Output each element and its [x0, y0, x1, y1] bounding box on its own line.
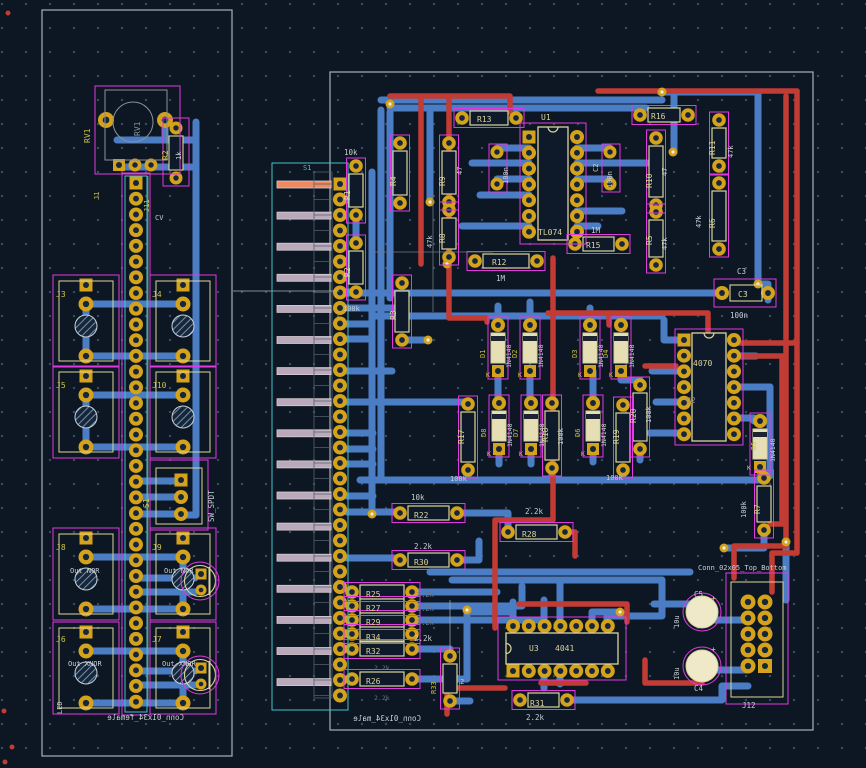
pad-hole — [133, 479, 139, 485]
dip-body-U1[interactable] — [538, 127, 568, 240]
pcb-editor-canvas[interactable]: RV1RV1R21kJ1J11CVJ3J4J5J10J8J9J6J7Out NO… — [0, 0, 866, 768]
label-r25-val[interactable]: 2.2k — [417, 591, 435, 599]
pad-hole — [447, 698, 453, 704]
label-j12-val[interactable]: Conn_02x05_Top_Bottom — [698, 564, 787, 572]
label-j4-ref[interactable]: J4 — [152, 290, 162, 299]
label-c4-plus[interactable]: + — [711, 645, 716, 654]
edge-finger[interactable] — [277, 399, 331, 406]
pad-hole — [409, 603, 415, 609]
label-r20-val[interactable]: 100k — [645, 405, 653, 423]
label-u1-ref[interactable]: U1 — [541, 113, 551, 122]
label-d3-ref[interactable]: D3 — [571, 350, 579, 358]
label-r17-val[interactable]: 100k — [450, 475, 468, 483]
pad-hole — [337, 367, 343, 373]
resistor-body-R9[interactable] — [442, 151, 456, 194]
pad-hole — [337, 414, 343, 420]
pad-hole — [83, 606, 89, 612]
pad-hole — [353, 289, 359, 295]
label-d2-k[interactable]: K — [518, 371, 522, 379]
pad-hole — [510, 623, 516, 629]
label-r9-val[interactable]: 47 — [456, 167, 464, 175]
pad-hole — [745, 663, 751, 669]
edge-finger[interactable] — [277, 243, 331, 250]
pad-hole — [605, 668, 611, 674]
pad-hole — [762, 663, 768, 669]
label-r29-ref[interactable]: R29 — [366, 618, 381, 627]
pad-hole — [173, 175, 178, 180]
pad-hole — [133, 400, 139, 406]
label-d4-k[interactable]: K — [609, 371, 613, 379]
pad-hole — [589, 668, 595, 674]
label-j5-ref[interactable]: J5 — [56, 381, 66, 390]
label-c4-ref[interactable]: C4 — [694, 684, 704, 693]
label-d7-ref[interactable]: D7 — [512, 429, 520, 437]
label-j1-ref[interactable]: J1 — [93, 192, 101, 200]
pad-hole — [745, 647, 751, 653]
label-r15-val[interactable]: 1M — [591, 226, 601, 235]
label-c2-val[interactable]: 100n — [606, 171, 614, 188]
label-u2-ref[interactable]: U2 — [686, 396, 696, 405]
label-r34-val[interactable]: 2.2k — [414, 634, 433, 643]
pad-hole — [133, 557, 139, 563]
pad-hole — [494, 181, 499, 186]
pad-hole — [510, 668, 516, 674]
pad-hole — [681, 353, 687, 359]
pad-hole — [198, 571, 204, 577]
pad-hole — [527, 368, 533, 374]
label-d2-ref[interactable]: D2 — [511, 350, 519, 358]
pad-hole — [762, 647, 768, 653]
label-d1-k[interactable]: K — [486, 371, 490, 379]
pad-hole — [472, 258, 478, 264]
pad-hole — [337, 212, 343, 218]
pad-hole — [446, 140, 452, 146]
label-d6-ref[interactable]: D6 — [574, 429, 582, 437]
cap-body-C4[interactable] — [686, 650, 718, 682]
label-u3-val[interactable]: 4041 — [555, 644, 574, 653]
pad-hole — [133, 510, 139, 516]
label-j9-ref[interactable]: J9 — [152, 543, 162, 552]
pad-hole — [180, 282, 186, 288]
edge-finger[interactable] — [277, 554, 331, 561]
pad-hole — [513, 115, 519, 121]
pad-hole — [574, 134, 580, 140]
pad-hole — [337, 491, 343, 497]
edge-finger[interactable] — [277, 648, 331, 655]
pad-hole — [549, 400, 555, 406]
label-j6-ref[interactable]: J6 — [56, 635, 66, 644]
pad-hole — [681, 431, 687, 437]
pad-hole — [337, 383, 343, 389]
edge-finger[interactable] — [277, 274, 331, 281]
resistor-body-R4[interactable] — [393, 151, 407, 195]
pad-hole — [557, 623, 563, 629]
label-out-xnor-1[interactable]: Out XNOR — [68, 660, 103, 668]
label-j12-ref[interactable]: J12 — [742, 701, 756, 710]
pad-hole — [534, 258, 540, 264]
pad-hole — [337, 181, 343, 187]
diode-band — [614, 336, 628, 341]
pad-hole — [446, 254, 452, 260]
pad-hole — [526, 213, 532, 219]
label-sw-spdt-val[interactable]: SW_SPDT — [207, 490, 216, 522]
pad-hole — [574, 150, 580, 156]
label-r7-ref[interactable]: R7 — [753, 504, 762, 514]
pad-hole — [133, 180, 139, 186]
label-out-nor-2[interactable]: Out NOR — [164, 567, 194, 575]
pad-hole — [765, 290, 771, 296]
via-hole — [618, 610, 621, 613]
label-r12-ref[interactable]: R12 — [492, 258, 507, 267]
pad-hole — [681, 368, 687, 374]
pad-hole — [397, 200, 403, 206]
label-j3-ref[interactable]: J3 — [56, 290, 66, 299]
label-r26-ref[interactable]: R26 — [366, 677, 381, 686]
label-r15-ref[interactable]: R15 — [586, 241, 601, 250]
pad-hole — [574, 213, 580, 219]
diode-band — [492, 414, 506, 419]
label-r33-val[interactable]: 2 — [460, 678, 464, 686]
pad-hole — [180, 301, 186, 307]
pad-hole — [681, 416, 687, 422]
pad-hole — [564, 697, 570, 703]
label-r5-val[interactable]: 47k — [661, 237, 669, 250]
edge-finger-selected[interactable] — [277, 181, 331, 188]
pad-hole — [148, 162, 153, 167]
edge-finger[interactable] — [277, 430, 331, 437]
pad-hole — [349, 631, 355, 637]
label-r2l-ref[interactable]: R2 — [161, 150, 170, 160]
label-r20-ref[interactable]: R20 — [629, 408, 638, 423]
pad-hole — [562, 529, 568, 535]
label-d1-ref[interactable]: D1 — [479, 350, 487, 358]
pad-hole — [762, 615, 768, 621]
edge-finger[interactable] — [277, 212, 331, 219]
label-j8-ref[interactable]: J8 — [56, 543, 66, 552]
pad-hole — [337, 429, 343, 435]
pad-hole — [526, 166, 532, 172]
label-s1r-ref[interactable]: S1 — [303, 164, 311, 172]
label-rv1-ref[interactable]: RV1 — [83, 128, 92, 143]
label-r9-ref[interactable]: R9 — [438, 176, 447, 186]
resistor-body-R7[interactable] — [757, 486, 771, 522]
label-d4-ref[interactable]: D4 — [602, 350, 610, 358]
pad-hole — [133, 605, 139, 611]
label-c5-ref[interactable]: C5 — [694, 590, 703, 599]
pad-hole — [574, 229, 580, 235]
pad-hole — [574, 166, 580, 172]
label-r33-ref[interactable]: R33 — [430, 681, 438, 694]
label-r11-ref[interactable]: R11 — [708, 140, 717, 155]
pad-hole — [495, 368, 501, 374]
edge-finger[interactable] — [277, 305, 331, 312]
label-j7-ref[interactable]: J7 — [152, 635, 162, 644]
label-r5-ref[interactable]: R5 — [645, 235, 654, 245]
pad-hole — [133, 620, 139, 626]
edge-finger[interactable] — [277, 585, 331, 592]
pad-hole — [496, 400, 502, 406]
pad-hole — [133, 384, 139, 390]
trace-back[interactable] — [567, 686, 748, 700]
pad-hole — [542, 668, 548, 674]
pad-hole — [526, 623, 532, 629]
pad-hole — [337, 646, 343, 652]
pad-hole — [349, 617, 355, 623]
label-j11-ref[interactable]: J11 — [143, 199, 151, 212]
label-r2r-ref[interactable]: R2 — [343, 267, 352, 277]
label-s1l-ref[interactable]: S1 — [142, 498, 151, 508]
via-hole — [426, 338, 429, 341]
label-u3-ref[interactable]: U3 — [529, 644, 539, 653]
pad-hole — [528, 446, 534, 452]
pcb-drawing[interactable]: RV1RV1R21kJ1J11CVJ3J4J5J10J8J9J6J7Out NO… — [0, 0, 866, 768]
pad-hole — [409, 589, 415, 595]
edge-finger[interactable] — [277, 461, 331, 468]
edge-finger[interactable] — [277, 679, 331, 686]
label-r28-val[interactable]: 2.2k — [525, 507, 544, 516]
label-r25-ref[interactable]: R25 — [366, 590, 381, 599]
label-r6-ref[interactable]: R6 — [708, 218, 717, 228]
trace-back[interactable] — [758, 92, 768, 300]
edge-finger[interactable] — [277, 616, 331, 623]
label-r13-ref[interactable]: R13 — [477, 115, 492, 124]
label-out-xnor-2[interactable]: Out XNOR — [162, 660, 197, 668]
pad-hole — [199, 588, 204, 593]
jack-bushing — [172, 406, 194, 428]
diode-band — [586, 414, 600, 419]
pad-hole — [353, 240, 359, 246]
pad-hole — [337, 677, 343, 683]
pad-hole — [637, 112, 643, 118]
pad-hole — [719, 290, 725, 296]
label-c5-val[interactable]: 10u — [673, 615, 681, 628]
label-d8-ref[interactable]: D8 — [480, 429, 488, 437]
pad-hole — [590, 400, 596, 406]
label-d2-val[interactable]: 1N4148 — [537, 344, 545, 368]
pad-hole — [526, 134, 532, 140]
label-r31-ref[interactable]: R31 — [530, 699, 545, 708]
pad-hole — [337, 538, 343, 544]
label-r19-val[interactable]: 100k — [606, 474, 624, 482]
pad-hole — [409, 676, 415, 682]
pad-hole — [337, 460, 343, 466]
pad-hole — [745, 615, 751, 621]
label-r31-val[interactable]: 2.2k — [526, 713, 545, 722]
label-r30-val[interactable]: 2.2k — [414, 542, 433, 551]
pad-hole — [337, 445, 343, 451]
pad-hole — [133, 683, 139, 689]
label-conn-female[interactable]: Conn_01x34_female — [107, 713, 184, 722]
pad-hole — [637, 446, 643, 452]
label-r18-ref[interactable]: R18 — [541, 427, 550, 442]
diode-band — [753, 432, 767, 437]
edge-finger[interactable] — [277, 337, 331, 344]
label-led-text[interactable]: LED — [56, 701, 64, 714]
label-d8-k[interactable]: K — [487, 450, 491, 458]
label-d6-val[interactable]: 1N4148 — [600, 423, 608, 447]
label-c2-ref[interactable]: C2 — [592, 164, 600, 172]
label-d7-k[interactable]: K — [519, 450, 523, 458]
label-out-nor-1[interactable]: Out NOR — [70, 567, 100, 575]
label-rv1-fab[interactable]: RV1 — [133, 121, 142, 136]
label-r22-ref[interactable]: R22 — [414, 511, 429, 520]
drc-marker — [2, 709, 7, 714]
pad-hole — [745, 631, 751, 637]
pad-hole — [133, 589, 139, 595]
label-c3-val[interactable]: 100n — [730, 311, 748, 320]
diode-band — [491, 336, 505, 341]
pad-hole — [337, 584, 343, 590]
resistor-body-R33[interactable] — [443, 664, 457, 693]
label-c1-val[interactable]: 100n — [502, 167, 510, 184]
pad-hole — [465, 401, 471, 407]
header-body-J12[interactable] — [731, 582, 783, 697]
pad-hole — [465, 467, 471, 473]
pad-hole — [731, 416, 737, 422]
pad-hole — [180, 606, 186, 612]
label-r19-ref[interactable]: R19 — [612, 429, 621, 444]
pad-hole — [337, 553, 343, 559]
label-r12-val[interactable]: 1M — [496, 274, 506, 283]
pad-hole — [180, 353, 186, 359]
label-d6-k[interactable]: K — [581, 450, 585, 458]
pad-hole — [590, 446, 596, 452]
jack-bushing — [75, 406, 97, 428]
pad-hole — [685, 112, 691, 118]
label-r17-ref[interactable]: R17 — [457, 429, 466, 444]
pad-hole — [757, 418, 763, 424]
pad-hole — [526, 181, 532, 187]
pad-hole — [83, 648, 89, 654]
label-d5-ref[interactable]: D5 — [750, 442, 758, 450]
pad-hole — [459, 115, 465, 121]
pad-hole — [761, 475, 767, 481]
jack-bushing — [75, 315, 97, 337]
pad-hole — [353, 163, 359, 169]
pad-hole — [349, 603, 355, 609]
pad-hole — [337, 352, 343, 358]
pad-hole — [199, 682, 204, 687]
resistor-body-R6[interactable] — [712, 191, 726, 241]
label-r34-ref[interactable]: R34 — [366, 633, 381, 642]
label-r6-val[interactable]: 47k — [695, 215, 703, 228]
label-r22-val[interactable]: 10k — [411, 493, 425, 502]
label-r32-val[interactable]: 2.2k — [374, 664, 390, 672]
pad-hole — [83, 301, 89, 307]
pad-hole — [83, 444, 89, 450]
label-r18-val[interactable]: 100k — [557, 427, 565, 445]
label-r10-ref[interactable]: R10 — [645, 173, 654, 188]
label-r4-ref[interactable]: R4 — [389, 176, 398, 186]
pad-hole — [574, 181, 580, 187]
label-u2-val[interactable]: 4070 — [693, 359, 712, 368]
label-c3-lbl[interactable]: C3 — [737, 267, 746, 276]
pad-hole — [409, 646, 415, 652]
label-c3-ref[interactable]: C3 — [738, 290, 748, 299]
label-r27-val[interactable]: 2.2k — [417, 605, 435, 613]
pad-hole — [337, 336, 343, 342]
pad-hole — [716, 246, 722, 252]
drc-marker — [6, 11, 11, 16]
pad-hole — [526, 197, 532, 203]
label-r7-val[interactable]: 100k — [740, 500, 748, 518]
label-cv-text[interactable]: CV — [155, 214, 164, 222]
pad-hole — [133, 542, 139, 548]
pad-hole — [180, 444, 186, 450]
pad-hole — [180, 392, 186, 398]
pad-hole — [526, 150, 532, 156]
edge-finger[interactable] — [277, 368, 331, 375]
label-r11-val[interactable]: 47k — [727, 145, 735, 158]
pad-hole — [549, 465, 555, 471]
trace-front[interactable] — [548, 313, 708, 331]
pad-hole — [731, 431, 737, 437]
label-d3-k[interactable]: K — [578, 371, 582, 379]
label-r2r-val[interactable]: 100k — [343, 305, 361, 313]
pad-hole — [607, 149, 612, 154]
label-r29-val[interactable]: 2.2k — [417, 619, 435, 627]
pad-hole — [353, 212, 359, 218]
label-c5-plus[interactable]: + — [711, 594, 716, 603]
label-r3-ref[interactable]: R3 — [389, 310, 398, 320]
pad-hole — [573, 623, 579, 629]
pad-hole — [83, 392, 89, 398]
label-r30-ref[interactable]: R30 — [414, 558, 429, 567]
label-r16-ref[interactable]: R16 — [651, 112, 666, 121]
pad-hole — [574, 197, 580, 203]
drc-marker — [10, 745, 15, 750]
pad-hole — [133, 227, 139, 233]
pad-hole — [637, 382, 643, 388]
label-c4-val[interactable]: 10u — [673, 667, 681, 680]
diode-band — [523, 336, 537, 341]
pad-hole — [178, 511, 184, 517]
pad-hole — [133, 463, 139, 469]
label-d5-val[interactable]: 1N4148 — [769, 438, 777, 462]
edge-finger[interactable] — [277, 523, 331, 530]
label-r2l-val[interactable]: 1k — [175, 151, 183, 160]
label-r8-ref[interactable]: R8 — [438, 233, 447, 243]
pad-hole — [337, 243, 343, 249]
pad-hole — [180, 373, 186, 379]
label-u1-val[interactable]: TL074 — [538, 228, 562, 237]
label-d4-val[interactable]: 1N4148 — [628, 344, 636, 368]
dip-body-U2[interactable] — [692, 333, 726, 441]
edge-finger[interactable] — [277, 492, 331, 499]
pad-hole — [133, 652, 139, 658]
pad-hole — [133, 447, 139, 453]
pad-hole — [761, 527, 767, 533]
label-r27-ref[interactable]: R27 — [366, 604, 381, 613]
pad-hole — [526, 668, 532, 674]
label-r10-val[interactable]: 47 — [661, 168, 669, 176]
pad-hole — [133, 259, 139, 265]
label-r1-ref[interactable]: R1 — [343, 190, 352, 200]
pad-hole — [173, 125, 178, 130]
pad-hole — [337, 398, 343, 404]
label-r32-ref[interactable]: R32 — [366, 647, 381, 656]
pad-hole — [133, 573, 139, 579]
pad-hole — [83, 373, 89, 379]
label-d5-k[interactable]: K — [747, 464, 751, 472]
via-hole — [370, 512, 373, 515]
pad-hole — [399, 280, 405, 286]
label-r28-ref[interactable]: R28 — [522, 530, 537, 539]
label-j10-ref[interactable]: J10 — [152, 381, 167, 390]
label-r26-val[interactable]: 2.2k — [374, 694, 390, 702]
label-conn-male[interactable]: Conn_01x34_male — [353, 714, 421, 723]
label-r1-val[interactable]: 10k — [344, 148, 358, 157]
